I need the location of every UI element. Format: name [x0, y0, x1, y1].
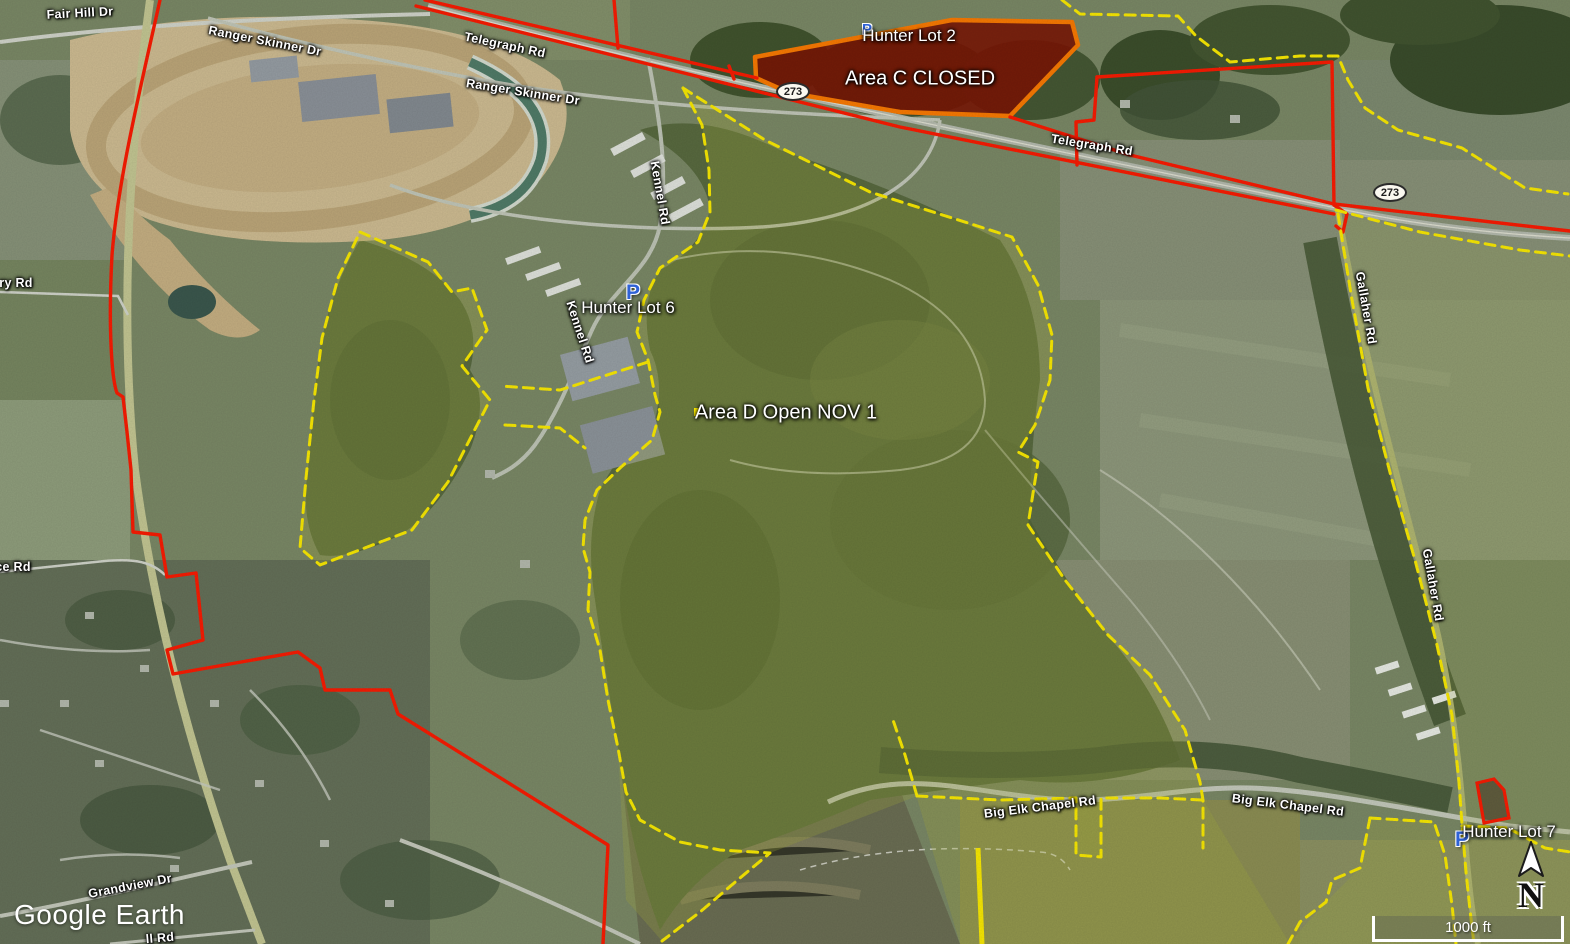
north-compass: N: [1511, 840, 1551, 911]
parking-icon-hunter-lot-7[interactable]: P: [1455, 828, 1469, 852]
route-273-shield-2: 273: [1373, 183, 1407, 202]
north-arrow-icon: [1513, 840, 1549, 880]
parking-icon-hunter-lot-6[interactable]: P: [626, 281, 640, 305]
parking-icon-hunter-lot-2[interactable]: P: [862, 21, 872, 38]
map-canvas[interactable]: Fair Hill Dr Ranger Skinner Dr Telegraph…: [0, 0, 1570, 944]
route-273-number: 273: [1381, 187, 1399, 199]
google-earth-watermark: Google Earth: [14, 899, 185, 931]
satellite-imagery: [0, 0, 1570, 944]
scale-bar: 1000 ft: [1372, 916, 1564, 942]
scale-bar-label: 1000 ft: [1445, 919, 1491, 936]
area-d-marker-dot: [694, 408, 699, 416]
route-273-number: 273: [784, 86, 802, 98]
route-273-shield: 273: [776, 82, 810, 101]
north-letter: N: [1511, 880, 1551, 911]
